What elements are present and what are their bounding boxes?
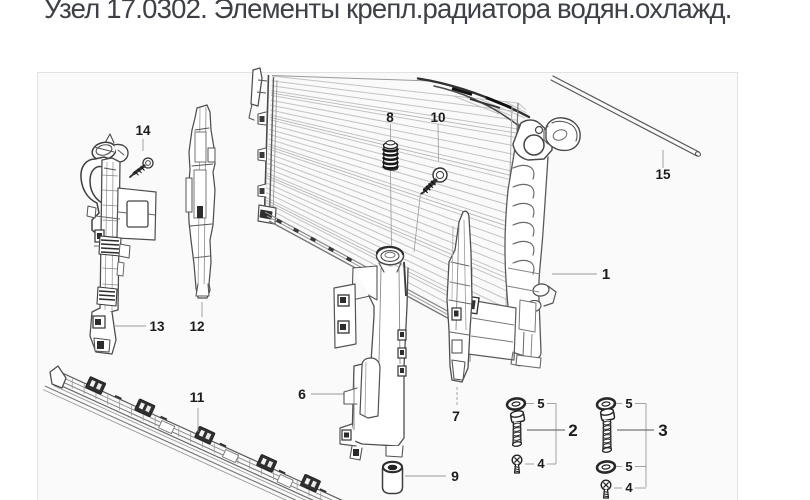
svg-text:13: 13 [149,319,165,334]
svg-text:4: 4 [537,456,545,471]
svg-text:15: 15 [655,167,671,182]
svg-text:5: 5 [625,459,632,474]
svg-text:11: 11 [190,389,205,405]
svg-text:1: 1 [602,266,610,283]
svg-text:8: 8 [386,110,394,125]
svg-text:5: 5 [625,396,632,411]
svg-text:4: 4 [625,480,633,495]
svg-text:14: 14 [135,123,151,138]
svg-text:12: 12 [189,319,204,334]
svg-text:3: 3 [658,421,667,440]
svg-text:7: 7 [452,408,460,424]
svg-text:9: 9 [451,468,459,484]
svg-text:5: 5 [537,396,544,411]
svg-text:6: 6 [298,386,306,402]
svg-text:2: 2 [568,421,577,440]
svg-text:10: 10 [430,110,445,125]
